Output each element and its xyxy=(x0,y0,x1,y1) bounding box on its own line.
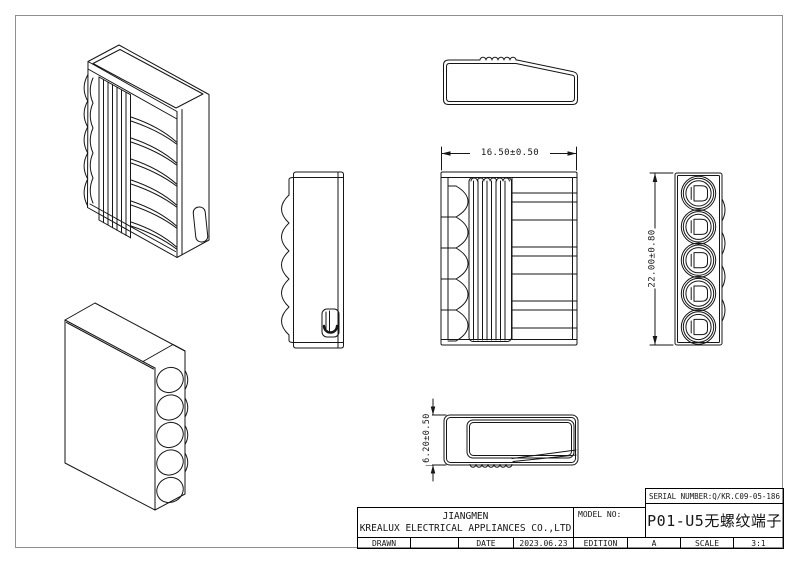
iso-view-rear-bottom-left xyxy=(65,303,188,510)
drawing-canvas xyxy=(0,0,800,565)
serial-number-cell: SERIAL NUMBER:Q/KR.C09-05-186 xyxy=(645,488,784,504)
bottom-view xyxy=(444,415,578,467)
end-view-terminals xyxy=(675,173,725,345)
scale-value-cell: 3:1 xyxy=(733,537,784,549)
depth-dimension-label: 6.20±0.50 xyxy=(422,411,432,465)
height-dimension-label: 22.00±0.80 xyxy=(647,228,658,288)
model-no-label-cell: MODEL NO: xyxy=(573,507,646,538)
top-view xyxy=(444,57,578,104)
scale-label-cell: SCALE xyxy=(680,537,734,549)
date-value-cell: 2023.06.23 xyxy=(513,537,574,549)
edition-label-cell: EDITION xyxy=(573,537,628,549)
width-dimension-label: 16.50±0.50 xyxy=(470,148,550,159)
date-label-cell: DATE xyxy=(458,537,514,549)
model-no-value-cell: P01-U5无螺纹端子 xyxy=(645,503,784,538)
engineering-drawing-page: 16.50±0.50 22.00±0.80 6.20±0.50 SERIAL N… xyxy=(0,0,800,565)
company-cell: JIANGMEN KREALUX ELECTRICAL APPLIANCES C… xyxy=(357,507,574,538)
side-view xyxy=(282,172,344,348)
drawn-value-cell xyxy=(410,537,459,549)
company-line1: JIANGMEN xyxy=(443,511,489,523)
drawn-label-cell: DRAWN xyxy=(357,537,411,549)
edition-value-cell: A xyxy=(627,537,681,549)
iso-view-front-top-left xyxy=(84,45,209,258)
company-line2: KREALUX ELECTRICAL APPLIANCES CO.,LTD xyxy=(360,523,572,535)
front-view xyxy=(441,172,577,345)
